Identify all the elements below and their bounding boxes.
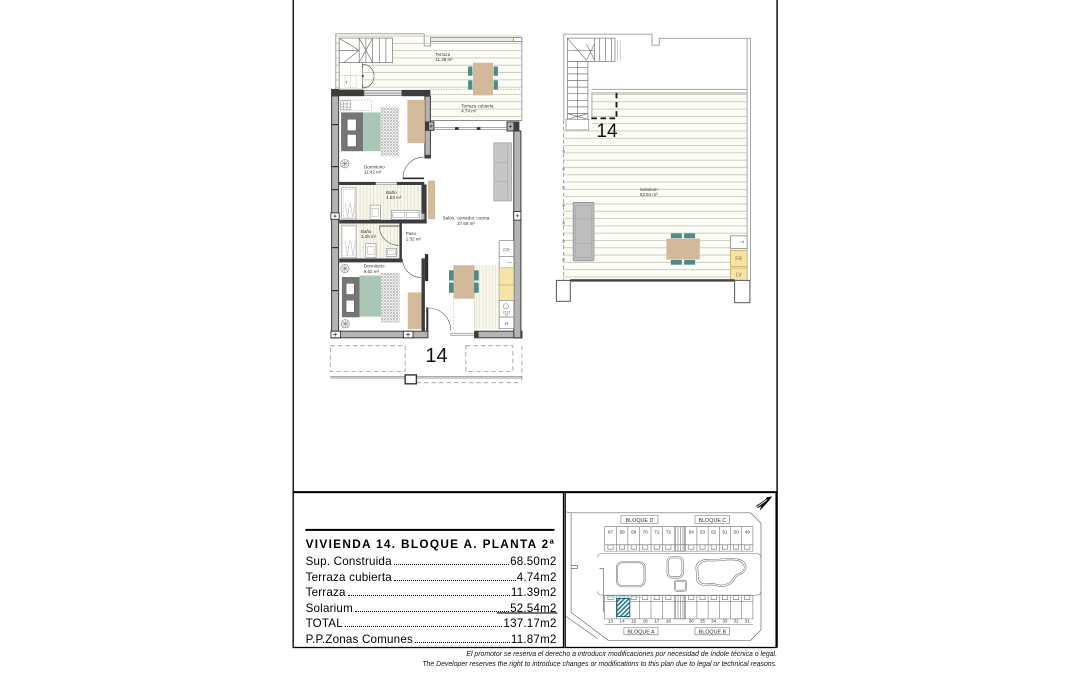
svg-text:14: 14 — [620, 618, 626, 623]
svg-text:H: H — [505, 321, 509, 327]
svg-text:9.62 m²: 9.62 m² — [364, 269, 380, 274]
svg-text:67: 67 — [608, 529, 614, 534]
svg-text:52.54 m²: 52.54 m² — [640, 192, 658, 197]
svg-text:51: 51 — [722, 529, 728, 534]
svg-text:34: 34 — [711, 618, 717, 623]
svg-text:35: 35 — [700, 618, 706, 623]
svg-text:32: 32 — [734, 618, 740, 623]
svg-text:14: 14 — [596, 121, 618, 142]
svg-text:17: 17 — [654, 618, 660, 623]
svg-text:1.32 m²: 1.32 m² — [406, 236, 422, 241]
svg-text:LV: LV — [736, 272, 742, 278]
svg-text:15: 15 — [631, 618, 637, 623]
svg-text:FR: FR — [503, 247, 510, 253]
svg-text:BLOQUE D: BLOQUE D — [626, 518, 654, 524]
svg-text:14: 14 — [425, 345, 447, 367]
svg-text:FR: FR — [735, 257, 742, 263]
svg-text:52: 52 — [711, 529, 717, 534]
svg-text:53: 53 — [700, 529, 706, 534]
svg-text:27.69 m²: 27.69 m² — [457, 221, 475, 226]
svg-text:11.42 m²: 11.42 m² — [364, 170, 382, 175]
svg-text:70: 70 — [643, 529, 649, 534]
svg-text:50: 50 — [734, 529, 740, 534]
svg-text:69: 69 — [631, 529, 637, 534]
svg-text:36: 36 — [689, 618, 695, 623]
svg-text:11.39 m²: 11.39 m² — [435, 57, 453, 62]
svg-text:Dormitorio: Dormitorio — [364, 164, 385, 169]
svg-text:18: 18 — [666, 618, 672, 623]
svg-text:71: 71 — [654, 529, 660, 534]
svg-text:BLOQUE B: BLOQUE B — [699, 630, 727, 636]
svg-text:3.26 m²: 3.26 m² — [361, 234, 377, 239]
svg-text:31: 31 — [745, 618, 751, 623]
svg-text:33: 33 — [722, 618, 728, 623]
svg-text:4.74 m²: 4.74 m² — [461, 108, 477, 113]
svg-text:68: 68 — [620, 529, 626, 534]
svg-text:BLOQUE A: BLOQUE A — [627, 630, 655, 636]
svg-text:4.63 m²: 4.63 m² — [386, 195, 402, 200]
svg-text:Salón, comedor, cocina: Salón, comedor, cocina — [443, 216, 490, 221]
svg-text:16: 16 — [643, 618, 649, 623]
svg-text:T: T — [345, 80, 348, 85]
svg-text:72: 72 — [666, 529, 672, 534]
svg-text:Dormitorio: Dormitorio — [364, 264, 385, 269]
svg-text:54: 54 — [689, 529, 695, 534]
svg-text:13: 13 — [608, 618, 614, 623]
svg-text:49: 49 — [745, 529, 751, 534]
svg-text:BLOQUE C: BLOQUE C — [698, 518, 726, 524]
